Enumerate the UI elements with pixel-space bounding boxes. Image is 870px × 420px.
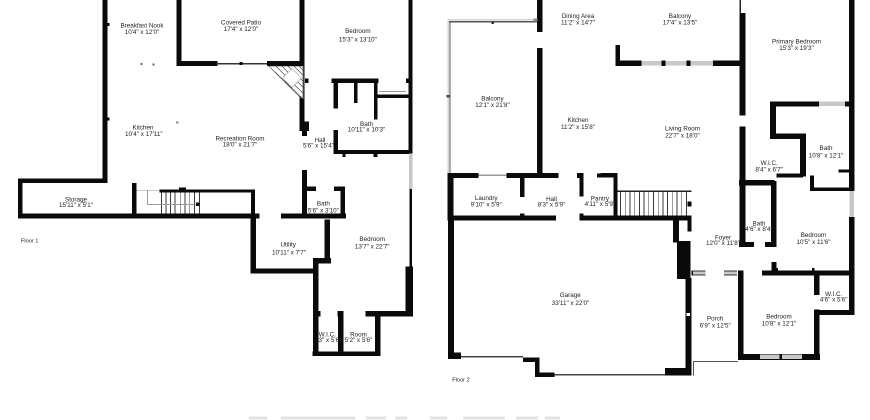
svg-text:15'3" x 13'10": 15'3" x 13'10": [339, 36, 377, 43]
svg-text:Bedroom: Bedroom: [359, 236, 385, 243]
svg-text:17'4" x 13'5": 17'4" x 13'5": [663, 20, 698, 27]
svg-text:5'2" x 5'6": 5'2" x 5'6": [345, 337, 373, 344]
svg-text:8'4" x 6'7": 8'4" x 6'7": [755, 167, 783, 174]
svg-text:15'3" x 19'3": 15'3" x 19'3": [779, 45, 814, 52]
svg-text:10'5" x 11'6": 10'5" x 11'6": [796, 239, 830, 246]
svg-text:13'7" x 22'7": 13'7" x 22'7": [355, 244, 390, 251]
svg-text:Kitchen: Kitchen: [567, 117, 589, 124]
svg-text:17'4" x 12'0": 17'4" x 12'0": [224, 26, 259, 33]
svg-text:22'7" x 18'0": 22'7" x 18'0": [665, 133, 700, 140]
svg-text:12'1" x 21'8": 12'1" x 21'8": [475, 102, 510, 109]
svg-text:10'11" x 7'7": 10'11" x 7'7": [272, 250, 306, 257]
svg-text:9'10" x 5'9": 9'10" x 5'9": [471, 202, 502, 209]
svg-text:4'6" x 8'4": 4'6" x 8'4": [745, 226, 773, 233]
svg-text:11'2" x 15'8": 11'2" x 15'8": [561, 124, 595, 131]
svg-text:11'2" x 14'7": 11'2" x 14'7": [561, 20, 595, 27]
svg-text:Bath: Bath: [820, 145, 833, 152]
svg-text:Bedroom: Bedroom: [766, 313, 792, 320]
svg-text:10'4" x 12'0": 10'4" x 12'0": [125, 29, 160, 36]
svg-text:18'0" x 21'7": 18'0" x 21'7": [223, 141, 258, 148]
svg-text:6'9" x 12'5": 6'9" x 12'5": [700, 323, 731, 330]
svg-text:Floor 1: Floor 1: [21, 239, 38, 245]
svg-text:12'0" x 11'8": 12'0" x 11'8": [706, 240, 740, 247]
svg-text:4'11" x 5'9": 4'11" x 5'9": [585, 201, 616, 208]
svg-text:33'11" x 22'0": 33'11" x 22'0": [552, 300, 590, 307]
svg-text:Living Room: Living Room: [665, 126, 700, 133]
svg-text:10'8" x 12'1": 10'8" x 12'1": [762, 321, 797, 328]
svg-text:5'6" x 15'4": 5'6" x 15'4": [303, 143, 334, 150]
svg-text:4'6" x 5'6": 4'6" x 5'6": [820, 297, 848, 304]
svg-text:15'11" x 5'1": 15'11" x 5'1": [59, 202, 93, 209]
svg-text:Bath: Bath: [317, 200, 330, 207]
svg-text:Porch: Porch: [707, 315, 724, 322]
svg-text:10'11" x 10'3": 10'11" x 10'3": [348, 127, 386, 134]
svg-text:10'4" x 17'11": 10'4" x 17'11": [125, 131, 163, 138]
svg-text:10'8" x 12'1": 10'8" x 12'1": [809, 153, 844, 160]
svg-text:8'3" x 5'9": 8'3" x 5'9": [538, 201, 566, 208]
svg-text:5'6" x 3'10": 5'6" x 3'10": [308, 207, 339, 214]
svg-text:Garage: Garage: [560, 292, 582, 299]
svg-text:Utility: Utility: [280, 242, 296, 249]
svg-text:Floor 2: Floor 2: [452, 378, 469, 384]
svg-text:Bedroom: Bedroom: [345, 28, 371, 35]
svg-text:7'3" x 5'6": 7'3" x 5'6": [314, 337, 342, 344]
